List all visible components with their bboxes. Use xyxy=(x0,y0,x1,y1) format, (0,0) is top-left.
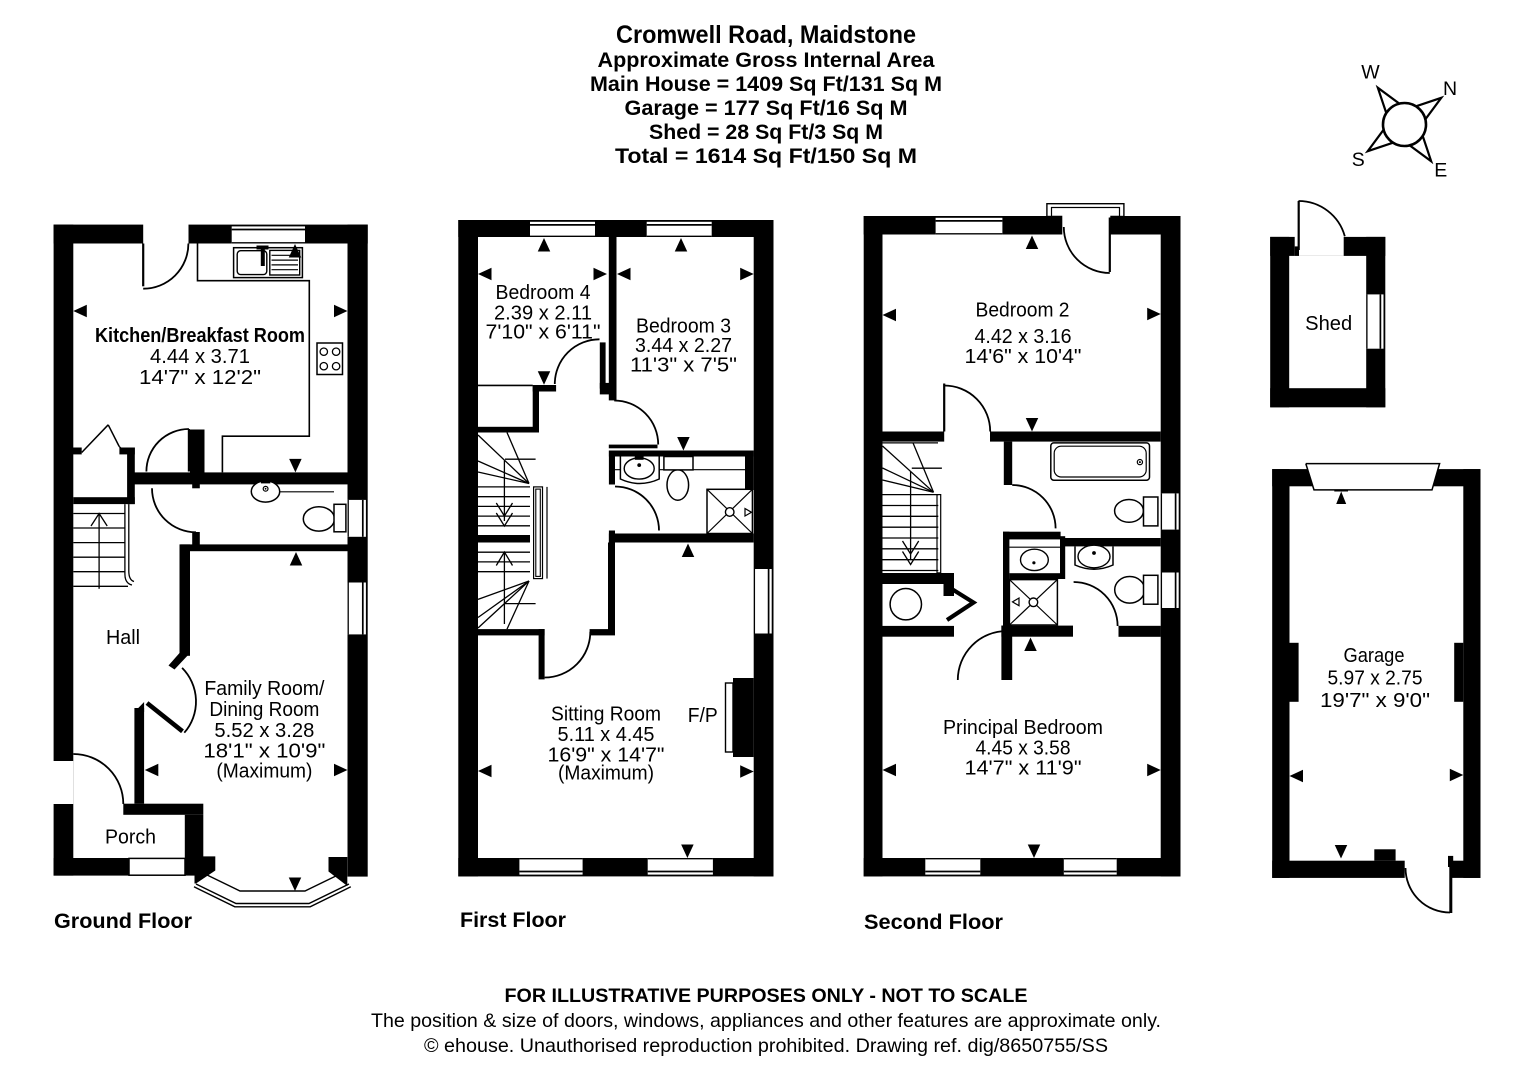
svg-text:14'6" x 10'4": 14'6" x 10'4" xyxy=(965,346,1082,368)
svg-text:Second Floor: Second Floor xyxy=(864,911,1003,934)
svg-text:5.52 x 3.28: 5.52 x 3.28 xyxy=(214,720,314,742)
svg-text:Hall: Hall xyxy=(106,627,140,649)
svg-text:11'3" x 7'5": 11'3" x 7'5" xyxy=(630,355,737,377)
svg-text:N: N xyxy=(1443,78,1457,100)
svg-text:First Floor: First Floor xyxy=(460,909,566,932)
svg-text:4.44 x 3.71: 4.44 x 3.71 xyxy=(150,346,250,368)
svg-text:Cromwell Road, Maidstone: Cromwell Road, Maidstone xyxy=(616,21,916,49)
svg-text:Dining Room: Dining Room xyxy=(209,699,319,721)
svg-text:14'7" x 12'2": 14'7" x 12'2" xyxy=(139,367,261,389)
svg-text:Garage = 177 Sq Ft/16 Sq M: Garage = 177 Sq Ft/16 Sq M xyxy=(625,97,908,120)
svg-text:5.97 x 2.75: 5.97 x 2.75 xyxy=(1328,668,1423,690)
svg-text:Ground Floor: Ground Floor xyxy=(54,910,192,933)
svg-text:5.11 x 4.45: 5.11 x 4.45 xyxy=(558,724,655,746)
svg-text:19'7" x 9'0": 19'7" x 9'0" xyxy=(1320,690,1430,712)
svg-text:Sitting Room: Sitting Room xyxy=(551,704,661,726)
svg-text:18'1" x 10'9": 18'1" x 10'9" xyxy=(203,741,325,763)
svg-text:E: E xyxy=(1434,159,1447,181)
svg-text:Bedroom 2: Bedroom 2 xyxy=(976,300,1070,322)
svg-text:Main House = 1409 Sq Ft/131 Sq: Main House = 1409 Sq Ft/131 Sq M xyxy=(590,73,942,96)
svg-text:S: S xyxy=(1352,149,1365,171)
svg-text:Garage: Garage xyxy=(1344,645,1405,667)
svg-text:4.45 x 3.58: 4.45 x 3.58 xyxy=(976,738,1071,760)
svg-text:(Maximum): (Maximum) xyxy=(558,763,654,785)
svg-text:The position & size of doors,: The position & size of doors, windows, a… xyxy=(371,1010,1161,1032)
svg-text:© ehouse. Unauthorised reprodu: © ehouse. Unauthorised reproduction proh… xyxy=(424,1035,1108,1057)
svg-text:Bedroom 4: Bedroom 4 xyxy=(496,282,591,304)
svg-text:FOR ILLUSTRATIVE PURPOSES ONLY: FOR ILLUSTRATIVE PURPOSES ONLY - NOT TO … xyxy=(505,986,1028,1007)
svg-text:Approximate Gross Internal Are: Approximate Gross Internal Area xyxy=(598,49,935,72)
svg-text:(Maximum): (Maximum) xyxy=(216,761,312,783)
svg-text:Family Room/: Family Room/ xyxy=(204,678,324,700)
svg-text:7'10" x 6'11": 7'10" x 6'11" xyxy=(486,322,601,344)
svg-text:Principal Bedroom: Principal Bedroom xyxy=(943,717,1103,739)
svg-text:Shed = 28 Sq Ft/3 Sq M: Shed = 28 Sq Ft/3 Sq M xyxy=(649,121,883,144)
svg-text:Shed: Shed xyxy=(1305,313,1352,335)
svg-text:W: W xyxy=(1361,62,1380,84)
svg-text:F/P: F/P xyxy=(688,705,718,727)
svg-text:4.42 x 3.16: 4.42 x 3.16 xyxy=(975,326,1072,348)
svg-text:Total = 1614 Sq Ft/150 Sq M: Total = 1614 Sq Ft/150 Sq M xyxy=(615,145,917,168)
svg-text:Porch: Porch xyxy=(105,827,156,849)
svg-text:Kitchen/Breakfast Room: Kitchen/Breakfast Room xyxy=(95,325,305,347)
svg-text:14'7" x 11'9": 14'7" x 11'9" xyxy=(965,758,1082,780)
